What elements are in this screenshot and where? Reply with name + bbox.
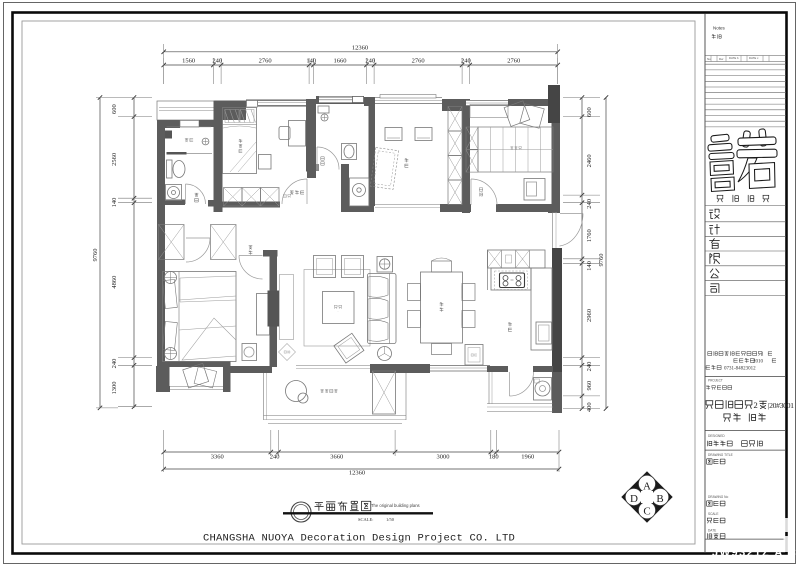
svg-text:DESIGNED: DESIGNED	[708, 434, 725, 438]
svg-text:9760: 9760	[92, 249, 99, 262]
svg-text:DRAWING TITLE: DRAWING TITLE	[708, 453, 733, 457]
svg-text:240: 240	[270, 454, 280, 461]
svg-text:1/50: 1/50	[386, 517, 395, 522]
svg-text:180: 180	[489, 454, 499, 461]
svg-text:SCALE: SCALE	[708, 512, 718, 516]
svg-text:240: 240	[365, 58, 375, 65]
svg-text:140: 140	[306, 58, 316, 65]
svg-text:1660: 1660	[334, 58, 347, 65]
svg-text:240: 240	[212, 58, 222, 65]
svg-text:400: 400	[586, 402, 593, 412]
svg-text:0731-84823012: 0731-84823012	[724, 367, 756, 372]
svg-text:600: 600	[586, 107, 593, 117]
svg-text:The original building plans: The original building plans	[371, 503, 420, 508]
svg-text:12360: 12360	[352, 45, 368, 52]
svg-text:Notes: Notes	[713, 26, 726, 31]
svg-text:600: 600	[111, 104, 118, 114]
svg-text:A: A	[643, 481, 651, 493]
svg-text:|20#3001: |20#3001	[768, 401, 794, 410]
svg-text:1560: 1560	[182, 58, 195, 65]
svg-text:140: 140	[586, 261, 593, 271]
svg-text:SCALE:: SCALE:	[358, 517, 374, 522]
svg-text:1300: 1300	[111, 382, 118, 395]
svg-text:140: 140	[111, 198, 118, 208]
svg-text:No: No	[707, 57, 711, 61]
svg-text:240: 240	[461, 58, 471, 65]
svg-text:12360: 12360	[349, 470, 365, 477]
svg-text:2960: 2960	[586, 309, 593, 322]
svg-text:2460: 2460	[586, 154, 593, 167]
svg-text:1960: 1960	[521, 454, 534, 461]
svg-text:C: C	[643, 506, 650, 518]
svg-text:240: 240	[111, 359, 118, 369]
svg-text:CHANGSHA NUOYA Decoration Des: CHANGSHA NUOYA Decoration Design Project…	[203, 533, 515, 545]
svg-text:DATE b: DATE b	[729, 56, 739, 60]
svg-text:DATE: DATE	[708, 529, 716, 533]
svg-text:PROJECT: PROJECT	[708, 379, 723, 383]
svg-text:2760: 2760	[412, 58, 425, 65]
svg-text:2: 2	[754, 400, 758, 410]
svg-text:2560: 2560	[111, 153, 118, 166]
svg-text:3660: 3660	[330, 454, 343, 461]
svg-text:DRAWING No: DRAWING No	[708, 495, 728, 499]
svg-text:240: 240	[586, 362, 593, 372]
svg-text:2760: 2760	[507, 58, 520, 65]
svg-text:960: 960	[586, 381, 593, 391]
svg-text:3000: 3000	[437, 454, 450, 461]
svg-text:240: 240	[586, 199, 593, 209]
svg-text:D: D	[630, 493, 638, 505]
svg-text:DATE c: DATE c	[749, 56, 759, 60]
svg-text:2010: 2010	[753, 360, 764, 365]
svg-text:1760: 1760	[586, 229, 593, 242]
svg-text:B: B	[656, 493, 663, 505]
svg-text:9760: 9760	[598, 254, 605, 267]
svg-text:3360: 3360	[211, 454, 224, 461]
svg-text:2760: 2760	[259, 58, 272, 65]
svg-text:4860: 4860	[111, 276, 118, 289]
